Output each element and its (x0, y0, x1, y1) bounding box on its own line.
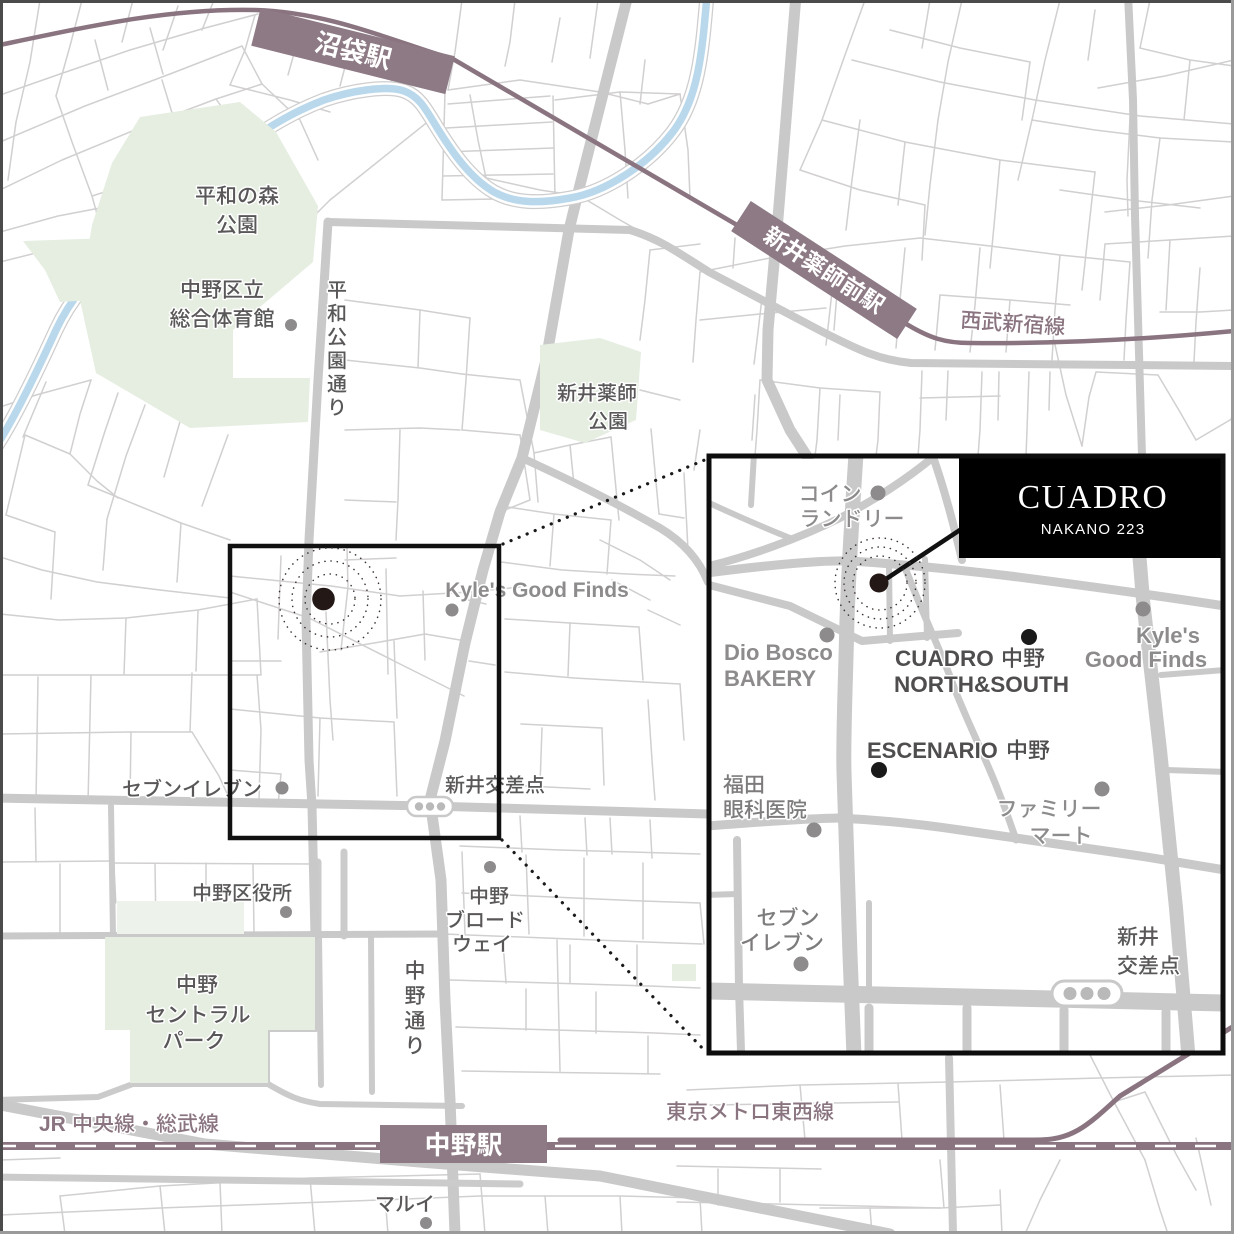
svg-text:Kyle's Good Finds: Kyle's Good Finds (445, 579, 629, 602)
svg-text:Kyle's: Kyle's (1136, 623, 1200, 648)
svg-text:ESCENARIO: ESCENARIO (867, 738, 998, 763)
svg-text:NORTH&SOUTH: NORTH&SOUTH (894, 672, 1069, 697)
svg-text:BAKERY: BAKERY (724, 666, 816, 691)
svg-text:Good Finds: Good Finds (1085, 647, 1207, 672)
svg-text:Dio Bosco: Dio Bosco (724, 640, 833, 665)
svg-text:CUADRO: CUADRO (895, 646, 994, 671)
svg-text:NAKANO 223: NAKANO 223 (1041, 521, 1146, 538)
svg-text:JR: JR (39, 1113, 66, 1136)
svg-text:CUADRO: CUADRO (1018, 479, 1168, 516)
